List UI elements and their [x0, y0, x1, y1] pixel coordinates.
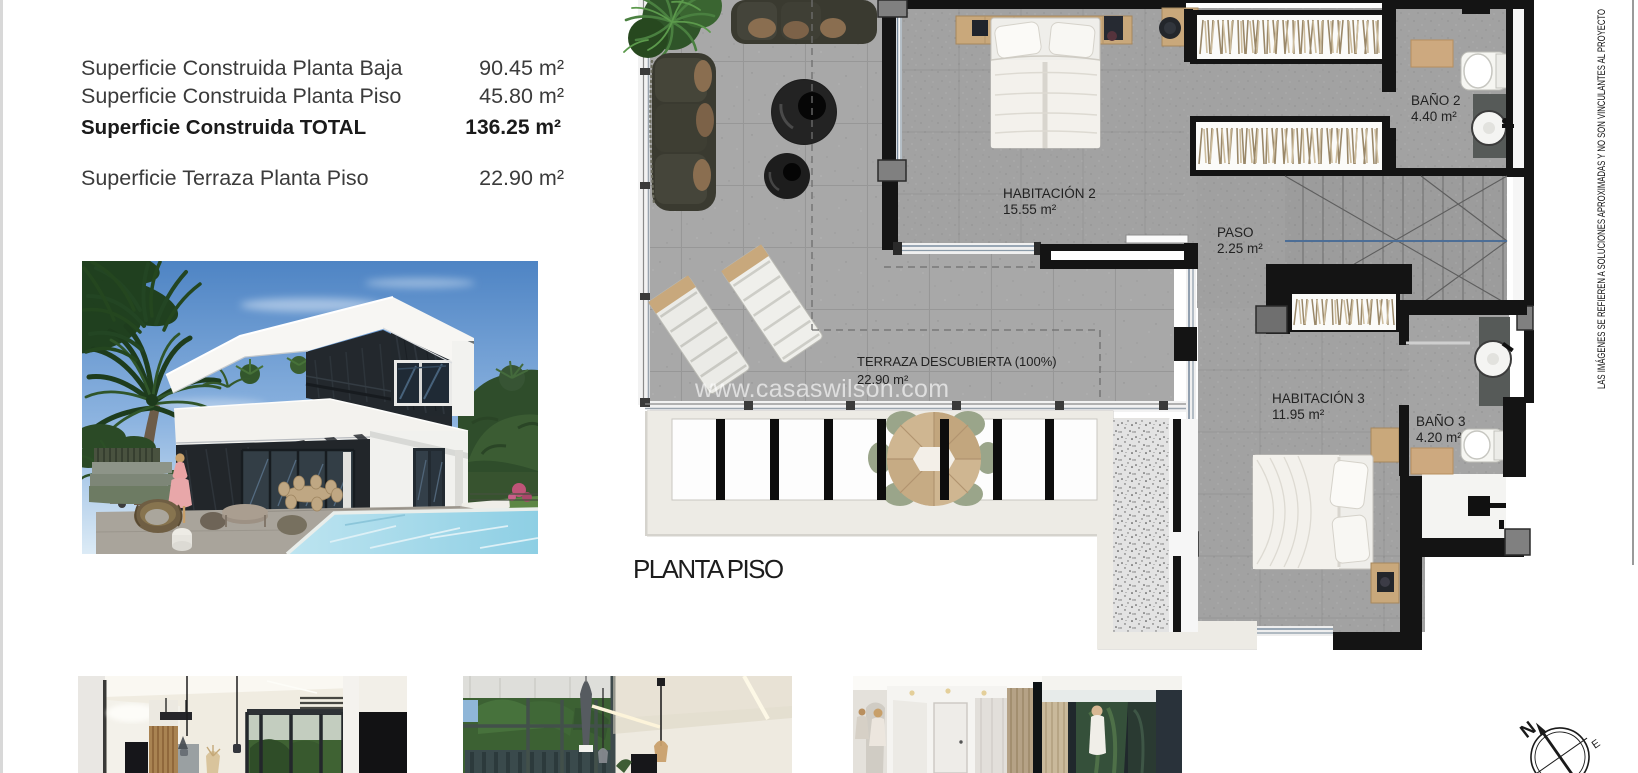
svg-text:HABITACIÓN 2: HABITACIÓN 2 — [1003, 186, 1096, 201]
svg-text:11.95 m²: 11.95 m² — [1272, 407, 1325, 422]
svg-text:TERRAZA DESCUBIERTA (100%): TERRAZA DESCUBIERTA (100%) — [857, 354, 1057, 369]
svg-text:Superficie Construida Planta P: Superficie Construida Planta Piso — [81, 84, 401, 108]
svg-text:PASO: PASO — [1217, 225, 1254, 240]
svg-text:4.40 m²: 4.40 m² — [1411, 109, 1457, 124]
svg-text:Superficie Terraza Planta Piso: Superficie Terraza Planta Piso — [81, 166, 369, 190]
svg-text:Superficie Construida TOTAL: Superficie Construida TOTAL — [81, 116, 366, 139]
svg-text:BAÑO 3: BAÑO 3 — [1416, 414, 1466, 429]
svg-text:4.20 m²: 4.20 m² — [1416, 430, 1462, 445]
svg-text:45.80 m²: 45.80 m² — [479, 84, 564, 108]
svg-text:15.55 m²: 15.55 m² — [1003, 202, 1057, 217]
svg-text:www.casaswilson.com: www.casaswilson.com — [694, 375, 949, 403]
svg-text:HABITACIÓN 3: HABITACIÓN 3 — [1272, 391, 1365, 406]
svg-text:LAS IMÁGENES SE REFIEREN A SOL: LAS IMÁGENES SE REFIEREN A SOLUCIONES AP… — [1595, 9, 1608, 389]
svg-text:22.90 m²: 22.90 m² — [857, 372, 909, 387]
svg-text:22.90 m²: 22.90 m² — [479, 166, 564, 190]
svg-text:2.25 m²: 2.25 m² — [1217, 241, 1263, 256]
svg-text:90.45 m²: 90.45 m² — [479, 56, 564, 80]
svg-text:BAÑO 2: BAÑO 2 — [1411, 93, 1461, 108]
svg-text:Superficie Construida Planta B: Superficie Construida Planta Baja — [81, 56, 403, 80]
svg-text:PLANTA PISO: PLANTA PISO — [633, 554, 783, 584]
svg-text:136.25 m²: 136.25 m² — [465, 116, 561, 139]
